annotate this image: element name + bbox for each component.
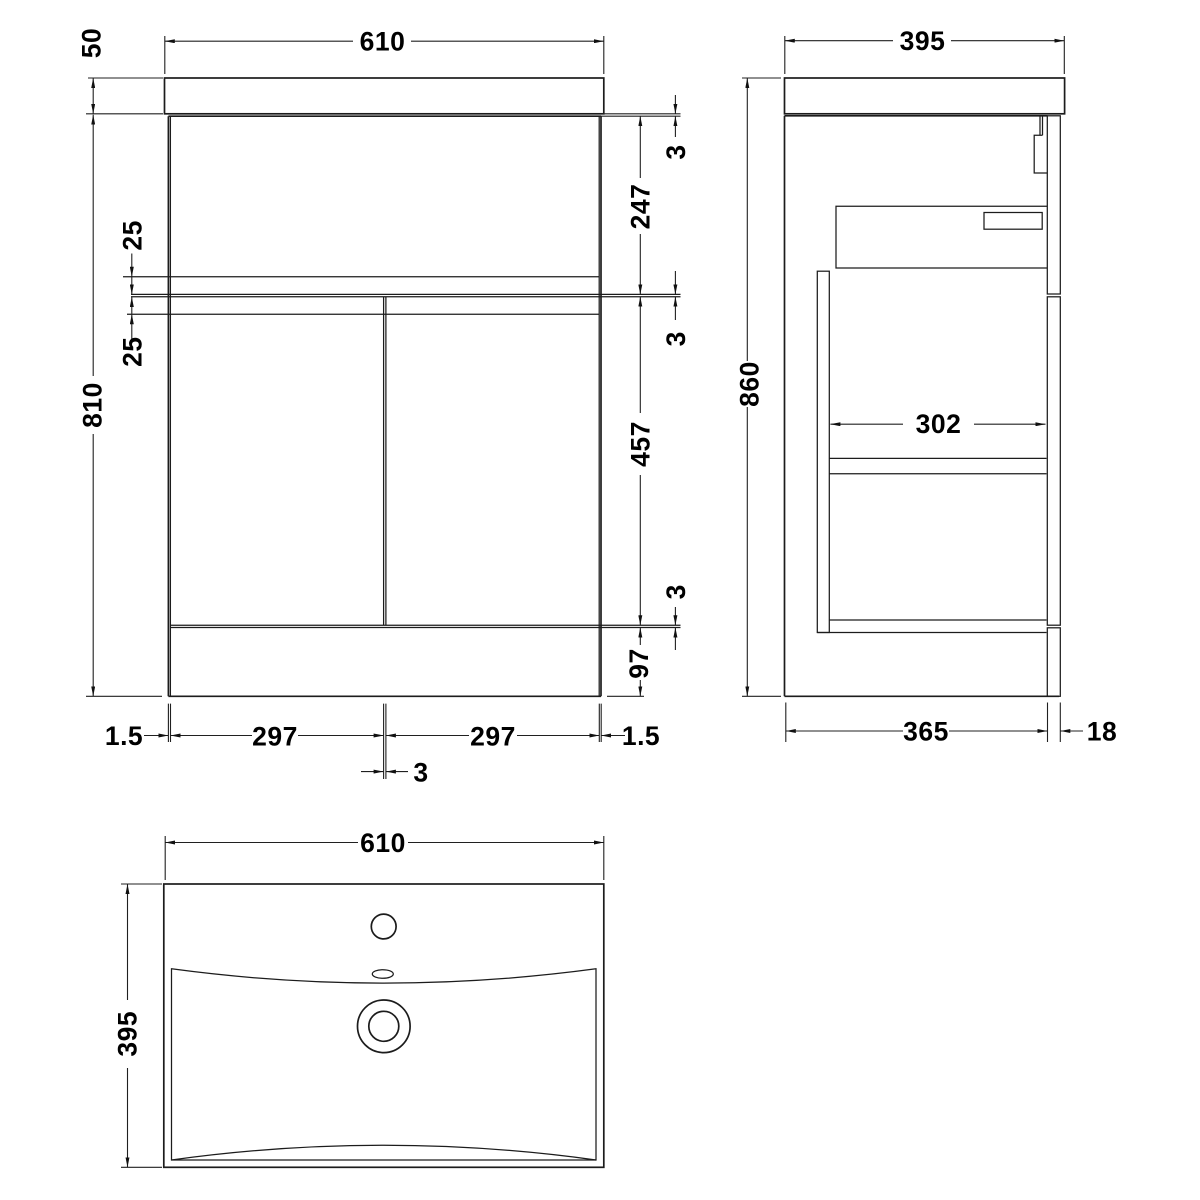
- svg-text:50: 50: [77, 28, 107, 58]
- svg-text:3: 3: [661, 584, 691, 599]
- svg-text:1.5: 1.5: [105, 721, 143, 751]
- svg-text:457: 457: [625, 421, 655, 467]
- svg-text:297: 297: [252, 721, 298, 751]
- svg-text:97: 97: [624, 648, 654, 678]
- svg-text:25: 25: [118, 220, 148, 250]
- svg-text:297: 297: [470, 721, 516, 751]
- svg-text:25: 25: [118, 336, 148, 366]
- svg-text:395: 395: [900, 26, 946, 56]
- svg-text:810: 810: [78, 382, 108, 428]
- svg-text:365: 365: [903, 716, 949, 746]
- svg-text:3: 3: [413, 757, 428, 787]
- svg-text:610: 610: [360, 828, 406, 858]
- svg-text:1.5: 1.5: [622, 721, 660, 751]
- svg-text:610: 610: [360, 27, 406, 57]
- svg-text:860: 860: [735, 361, 765, 407]
- svg-text:3: 3: [661, 144, 691, 159]
- svg-text:302: 302: [916, 409, 962, 439]
- svg-text:395: 395: [113, 1011, 143, 1057]
- svg-text:247: 247: [625, 184, 655, 230]
- svg-text:3: 3: [661, 331, 691, 346]
- svg-text:18: 18: [1087, 716, 1117, 746]
